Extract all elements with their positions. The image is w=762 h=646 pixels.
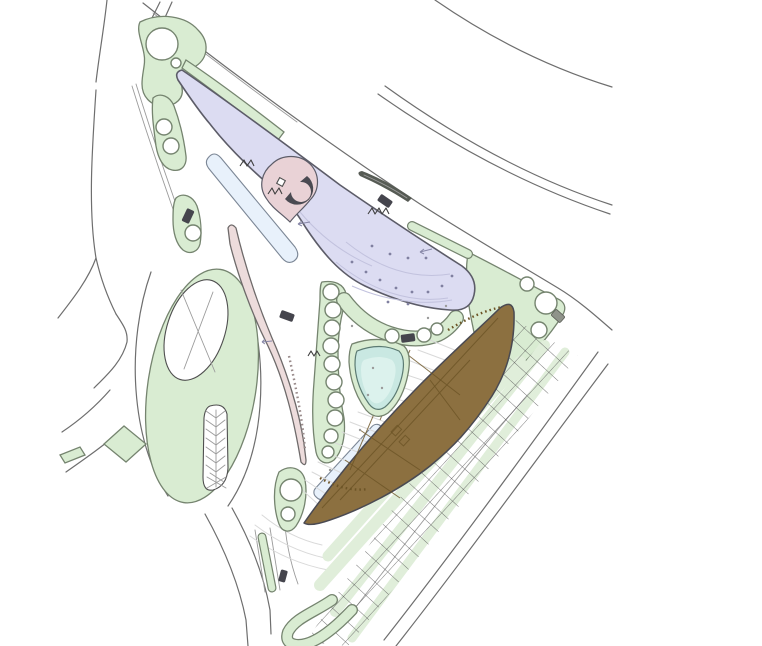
column-dot: [427, 291, 430, 294]
tree: [171, 58, 181, 68]
road-edge-west-upper: [96, 0, 107, 82]
column-dot: [379, 279, 382, 282]
tree: [327, 410, 343, 426]
pond-dot: [381, 387, 383, 389]
column-dot: [389, 253, 392, 256]
column-dot: [395, 287, 398, 290]
paving-dot: [445, 305, 447, 307]
column-dot: [411, 291, 414, 294]
paving-dot: [359, 429, 361, 431]
column-dot: [451, 275, 454, 278]
tree: [326, 374, 342, 390]
tree-large-south: [280, 479, 302, 501]
car: [377, 194, 393, 209]
column-dot: [407, 257, 410, 260]
tree: [324, 429, 338, 443]
tree: [417, 328, 431, 342]
tree: [325, 302, 341, 318]
paving-dot: [351, 325, 353, 327]
tree-large-east: [535, 292, 557, 314]
column-dot: [441, 285, 444, 288]
tree: [322, 446, 334, 458]
tree: [156, 119, 172, 135]
tree: [385, 329, 399, 343]
tree: [431, 323, 443, 335]
column-dot: [365, 271, 368, 274]
road-branch-southwest: [58, 258, 96, 318]
tree-large-north: [146, 28, 178, 60]
column-dot: [387, 301, 390, 304]
tree: [520, 277, 534, 291]
car: [279, 310, 295, 322]
site-plan-canvas: [0, 0, 762, 646]
tree: [328, 392, 344, 408]
tree: [323, 338, 339, 354]
road-edge-west: [91, 90, 116, 314]
tree: [281, 507, 295, 521]
road-south-exit-1: [205, 514, 248, 646]
road-junction-southwest-1: [62, 390, 110, 432]
pond-dot: [367, 394, 369, 396]
pond-dot: [372, 367, 374, 369]
highway-arc-mid-1: [385, 86, 612, 205]
column-dot: [425, 257, 428, 260]
green-median-junction: [104, 426, 146, 462]
tree: [323, 284, 339, 300]
tree: [324, 356, 340, 372]
column-dot: [351, 261, 354, 264]
paving-dot: [329, 469, 331, 471]
site-plan-drawing: [0, 0, 762, 646]
road-edge-west-lower: [94, 314, 127, 388]
tree: [324, 320, 340, 336]
column-dot: [371, 245, 374, 248]
column-dot: [407, 303, 410, 306]
green-strip-west: [173, 195, 201, 252]
tree: [163, 138, 179, 154]
tree: [185, 225, 201, 241]
tree: [531, 322, 547, 338]
highway-arc-top: [435, 0, 612, 87]
paving-dot: [427, 317, 429, 319]
car: [278, 569, 288, 582]
